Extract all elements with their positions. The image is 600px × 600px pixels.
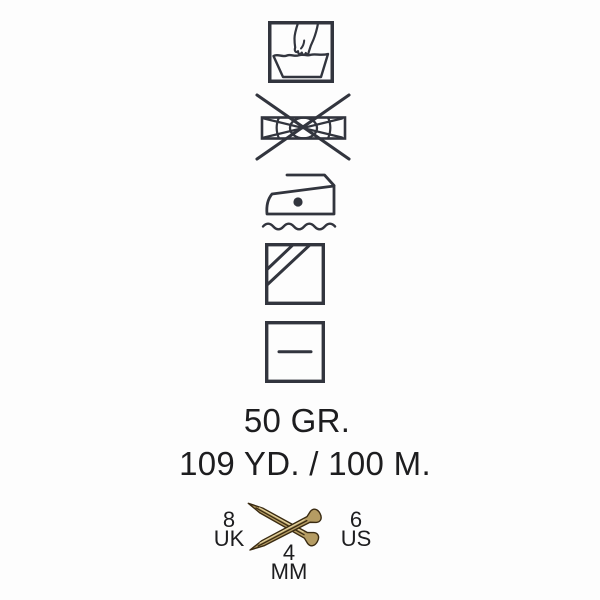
needle-size-mm: 4 MM xyxy=(271,544,308,581)
dry-in-shade-icon xyxy=(265,243,325,305)
needle-size-uk: 8 UK xyxy=(214,511,245,548)
needle-size-us: 6 US xyxy=(341,511,372,548)
iron-one-dot-steam-icon xyxy=(261,170,337,232)
hand-wash-icon xyxy=(268,21,334,83)
needle-size-uk-unit: UK xyxy=(214,530,245,549)
weight-text: 50 GR. xyxy=(244,402,350,440)
yarn-label: 50 GR. 109 YD. / 100 M. 8 UK 6 US 4 xyxy=(0,0,600,600)
yardage-text: 109 YD. / 100 M. xyxy=(179,445,431,483)
needle-size-mm-unit: MM xyxy=(271,563,308,582)
do-not-wring-icon xyxy=(253,93,353,161)
needle-size-us-unit: US xyxy=(341,530,372,549)
dry-flat-icon xyxy=(265,321,325,383)
